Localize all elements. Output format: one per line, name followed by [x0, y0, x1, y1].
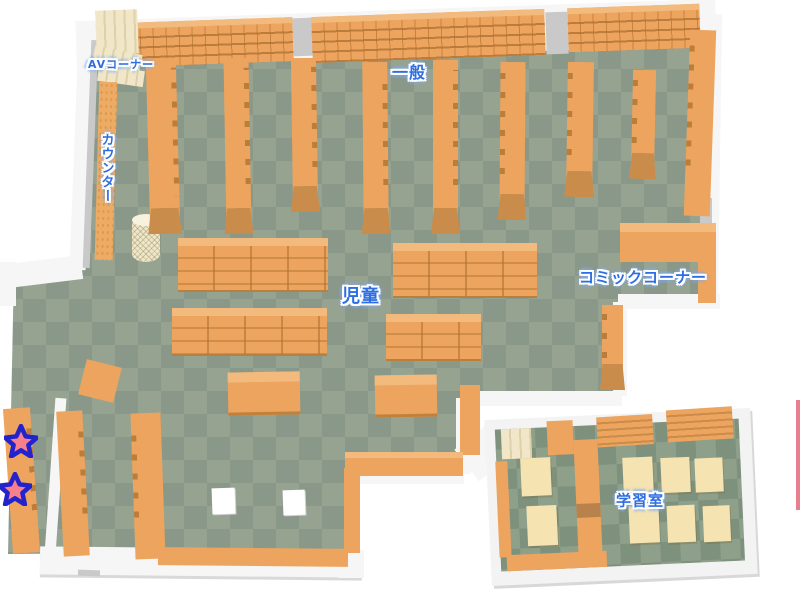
- corner-shelf-h: [345, 452, 463, 476]
- bookshelf-lower-2: [130, 413, 165, 560]
- library-floor-map: AVコーナー カウンター 一般 児童 コミックコーナー 学習室: [0, 0, 800, 600]
- label-children: 児童: [342, 282, 380, 308]
- star-marker-2[interactable]: [0, 472, 32, 506]
- study-desk-3: [622, 457, 654, 494]
- children-shelf-3: [172, 308, 327, 356]
- study-desk-2: [526, 505, 558, 546]
- star-marker-1[interactable]: [4, 424, 38, 458]
- study-rack-2: [666, 406, 734, 442]
- label-study-room: 学習室: [616, 490, 664, 511]
- wall-step2-h: [470, 391, 622, 406]
- study-desk-4: [660, 457, 691, 493]
- bookshelf-col-2: [223, 58, 251, 232]
- study-desk-7: [666, 505, 696, 543]
- children-table-2: [375, 374, 438, 417]
- wall-shelf-top-2: [311, 9, 545, 63]
- bookshelf-col-1: [146, 58, 181, 233]
- study-desk-5: [694, 457, 724, 492]
- bookshelf-col-4: [362, 62, 388, 232]
- corner-shelf-v1: [460, 385, 480, 455]
- white-table-2: [283, 490, 306, 516]
- children-table-1: [228, 371, 301, 415]
- bookshelf-bottom-wall: [158, 547, 348, 567]
- children-shelf-2: [393, 243, 537, 298]
- comic-shelf-v: [602, 305, 623, 388]
- study-rack-1: [596, 414, 654, 447]
- wall-shelf-top-3: [567, 4, 700, 53]
- children-shelf-1: [178, 238, 328, 292]
- white-table-1: [212, 488, 236, 515]
- doorway-top-1: [292, 18, 312, 57]
- bookshelf-col-3: [291, 58, 318, 210]
- bookshelf-col-7: [566, 62, 594, 195]
- bookshelf-col-6: [499, 62, 525, 218]
- bookshelf-col-8: [631, 70, 656, 177]
- label-general: 一般: [392, 59, 426, 83]
- label-av-corner: AVコーナー: [88, 56, 154, 72]
- doorway-top-2: [545, 12, 568, 55]
- door-mark-bottom: [78, 570, 100, 577]
- study-bottom-shelf: [507, 551, 608, 572]
- study-shelf-2: [546, 420, 574, 455]
- bookshelf-col-5: [433, 60, 458, 232]
- label-counter: カウンター: [97, 133, 116, 203]
- label-comic-corner: コミックコーナー: [579, 267, 707, 288]
- study-shelf-1: [501, 428, 532, 459]
- study-divider-door: [576, 503, 601, 518]
- study-desk-1: [520, 457, 552, 496]
- corner-shelf-v2: [344, 468, 360, 553]
- map-edge-accent: [796, 400, 800, 510]
- wall-alcove-v: [0, 262, 16, 306]
- study-desk-8: [703, 505, 732, 542]
- children-shelf-4: [386, 314, 481, 361]
